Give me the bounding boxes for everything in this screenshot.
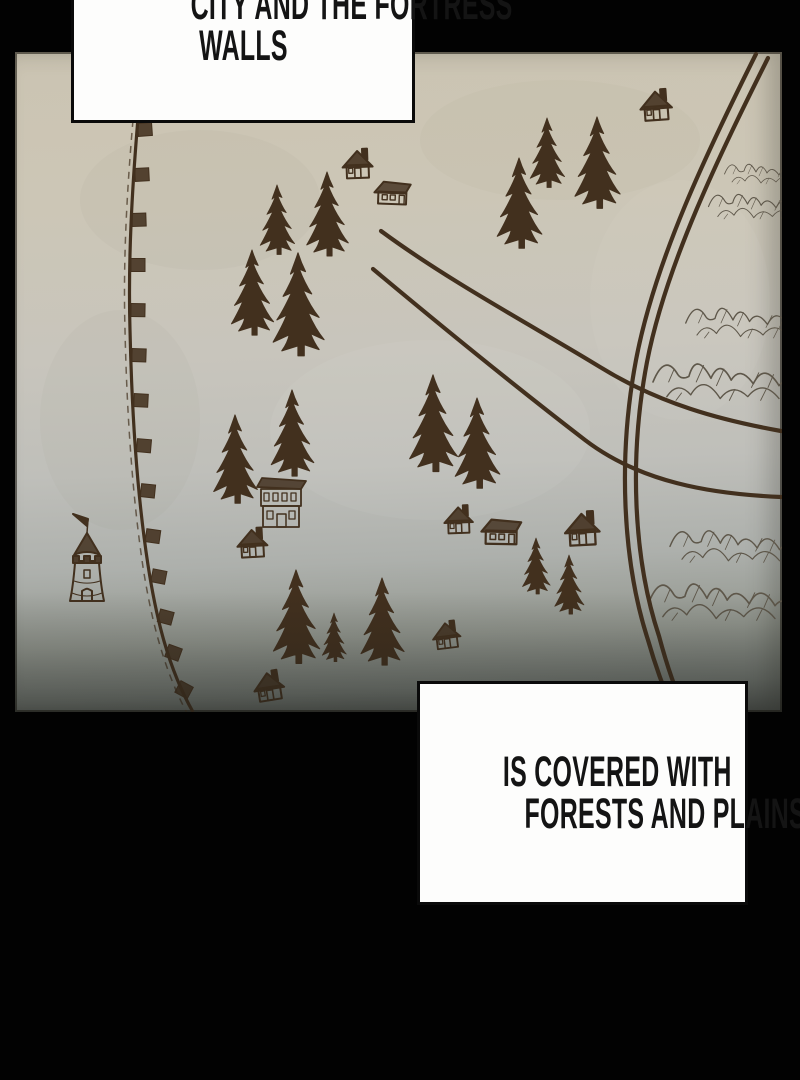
- house-icon: [481, 519, 521, 544]
- mountain-range-icon: [649, 584, 782, 620]
- wall-crenellation: [151, 569, 167, 584]
- caption-bottom-line1: IS COVERED WITH: [420, 751, 745, 793]
- wall-crenellation: [138, 122, 153, 136]
- pine-tree-icon: [555, 555, 584, 614]
- caption-box-bottom: IS COVERED WITH FORESTS AND PLAINS.: [417, 681, 748, 905]
- wall-crenellation: [132, 349, 146, 362]
- house-icon: [564, 511, 600, 546]
- mountain-range-icon: [725, 164, 783, 184]
- caption-top-line2: WALLS: [74, 26, 412, 67]
- pine-tree-icon: [274, 570, 320, 663]
- house-icon: [431, 620, 462, 650]
- wall-crenellation: [131, 304, 145, 317]
- caption-bottom-line2: FORESTS AND PLAINS.: [420, 793, 745, 835]
- map-illustration: [15, 52, 782, 712]
- wall-crenellation: [145, 529, 161, 544]
- pine-tree-icon: [523, 538, 551, 594]
- pine-tree-icon: [322, 613, 346, 662]
- comic-page: CITY AND THE FORTRESS WALLS IS COVERED W…: [0, 0, 800, 1080]
- house-icon: [342, 148, 373, 178]
- house-icon: [374, 181, 411, 204]
- wall-crenellation: [134, 394, 149, 408]
- watchtower-icon: [70, 514, 104, 601]
- wall-crenellation: [136, 439, 151, 453]
- wall-crenellation: [132, 213, 146, 226]
- wall-crenellation: [135, 168, 150, 182]
- house-icon: [237, 527, 268, 558]
- wall-crenellation: [165, 644, 183, 661]
- pine-tree-icon: [214, 415, 258, 503]
- caption-box-top: CITY AND THE FORTRESS WALLS: [71, 0, 415, 123]
- two-story-building-icon: [257, 478, 306, 527]
- wall-crenellation: [131, 259, 145, 272]
- mountain-range-icon: [670, 531, 782, 563]
- fantasy-map-panel: [15, 52, 782, 712]
- pine-tree-icon: [273, 253, 324, 356]
- pine-tree-icon: [361, 578, 404, 665]
- wall-crenellation: [140, 484, 155, 498]
- house-icon: [252, 669, 286, 702]
